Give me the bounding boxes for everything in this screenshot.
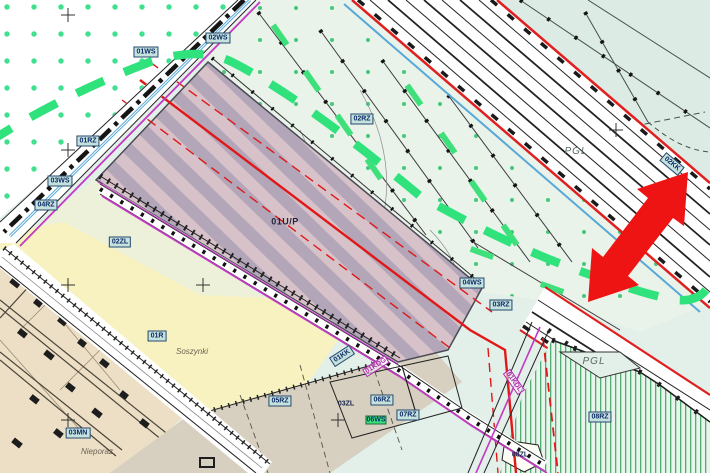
zone-label-06ws: 06WS [365,416,386,425]
zone-label-03rz: 03RZ [489,300,512,311]
zone-label-08rz: 08RZ [588,412,611,423]
zone-label-01rz: 01RZ [76,136,99,147]
zone-label-04ws: 04WS [459,278,484,289]
zone-label-03mn: 03MN [66,428,91,439]
zone-label-04rz: 04RZ [34,200,57,211]
zone-label-02rz: 02RZ [350,114,373,125]
base-map-svg [0,0,710,473]
zoning-map: 01WS 02WS 01RZ 03WS 04RZ 02ZL 02RZ 01U/P… [0,0,710,473]
zone-label-01up: 01U/P [271,218,299,227]
zone-label-03ws: 03WS [47,176,72,187]
zone-label-07rz: 07RZ [396,410,419,421]
zone-label-02ws: 02WS [205,33,230,44]
zone-label-06rz: 06RZ [370,395,393,406]
zone-label-05rz: 05RZ [268,396,291,407]
forest-label-pgl-2: PGL [582,357,605,367]
zone-label-01ws: 01WS [133,47,158,58]
place-name-nieporaz: Nieporaz [81,448,113,456]
zone-label-02zl: 02ZL [109,237,131,248]
zone-label-03zl: 03ZL [338,401,354,408]
forest-label-pgl-1: PGL [564,147,587,157]
zone-label-08zl: 08ZL [512,452,528,459]
zone-label-01r: 01R [148,331,167,342]
place-name-soszynki: Soszynki [176,348,208,356]
